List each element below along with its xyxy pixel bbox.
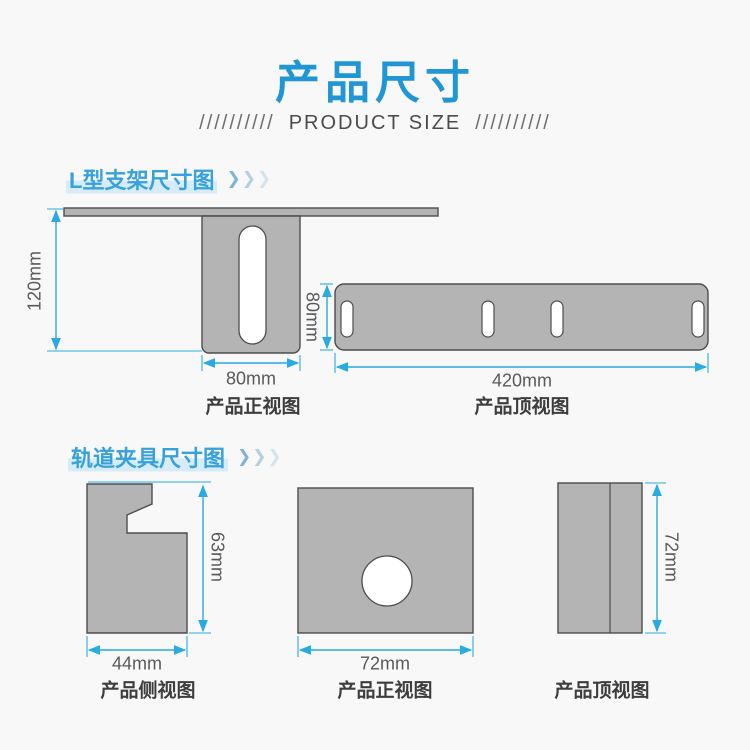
subtitle-text: PRODUCT SIZE <box>289 112 462 135</box>
figure-clamp-top <box>558 483 666 633</box>
slot-hole <box>482 301 494 337</box>
caption-front-view-1: 产品正视图 <box>205 392 300 419</box>
clamp-top-plate <box>558 483 642 633</box>
caption-front-view-2: 产品正视图 <box>337 676 432 703</box>
chevrons-icon: ❯❯❯ <box>226 169 272 189</box>
clamp-center-hole <box>362 556 412 606</box>
section-heading-text: 轨道夹具尺寸图 <box>68 441 228 473</box>
dim-label-80mm-top: 80mm <box>302 292 323 342</box>
bracket-slot <box>239 226 266 344</box>
subtitle: ////////// PRODUCT SIZE ////////// <box>0 112 750 135</box>
subtitle-slashes-right: ////////// <box>475 112 551 135</box>
bracket-top-flange <box>64 208 438 216</box>
dim-label-72mm-front: 72mm <box>360 654 410 675</box>
subtitle-slashes-left: ////////// <box>199 112 275 135</box>
dim-label-44mm: 44mm <box>112 654 162 675</box>
caption-top-view-2: 产品顶视图 <box>554 676 649 703</box>
dim-label-120mm: 120mm <box>25 251 46 311</box>
caption-top-view-1: 产品顶视图 <box>474 392 569 419</box>
figure-clamp-front <box>298 488 473 657</box>
section-heading-rail-clamp: 轨道夹具尺寸图 ❯❯❯ <box>68 441 283 473</box>
figure-l-bracket-top <box>320 284 708 373</box>
page-title: 产品尺寸 <box>275 46 475 111</box>
bracket-top-view-plate <box>335 284 708 350</box>
section-heading-l-bracket: L型支架尺寸图 ❯❯❯ <box>66 163 272 195</box>
clamp-side-profile <box>87 484 187 633</box>
chevrons-icon: ❯❯❯ <box>237 447 283 467</box>
slot-hole <box>341 301 353 337</box>
figure-clamp-side <box>87 482 211 657</box>
dim-label-80mm-front: 80mm <box>226 369 276 390</box>
caption-side-view: 产品侧视图 <box>100 676 195 703</box>
slot-hole <box>551 301 563 337</box>
dim-label-63mm: 63mm <box>207 532 228 582</box>
section-heading-text: L型支架尺寸图 <box>66 163 217 195</box>
slot-hole <box>692 301 704 337</box>
dim-label-72mm-top: 72mm <box>661 532 682 582</box>
dim-label-420mm: 420mm <box>492 371 552 392</box>
product-size-infographic: 产品尺寸 ////////// PRODUCT SIZE ////////// … <box>0 0 750 750</box>
